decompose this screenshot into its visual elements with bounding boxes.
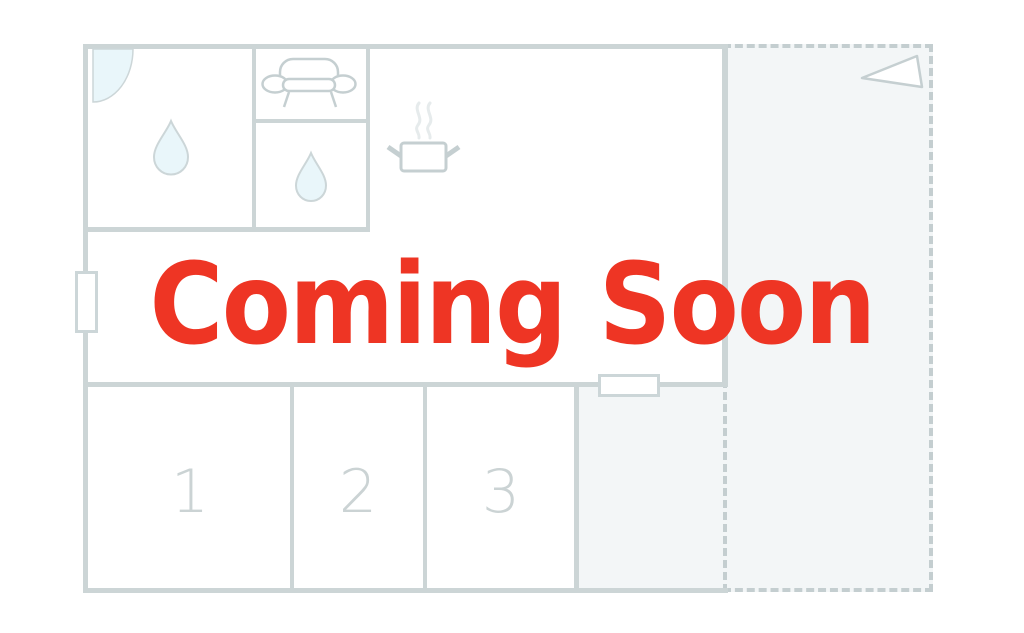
coming-soon-text: Coming Soon [51, 249, 973, 361]
wall-room3-right [574, 387, 579, 588]
room-label-2: 2 [339, 457, 377, 527]
wall-lounge-right [366, 44, 370, 232]
shaded-room [579, 387, 723, 588]
room-label-3: 3 [482, 457, 520, 527]
door-swing-icon [93, 49, 133, 102]
water-drop-icon [154, 121, 188, 175]
wall-bathroom-bottom [88, 227, 370, 232]
steam-icon [417, 103, 420, 138]
floor-plan-placeholder: 1 2 3 Coming Soon [0, 0, 1024, 633]
cooking-pot-icon [388, 103, 459, 171]
steam-icon [428, 103, 431, 138]
wall-lounge-bottom [252, 119, 370, 123]
water-drop-icon [296, 153, 326, 201]
sofa-icon [263, 59, 356, 107]
room-label-1: 1 [171, 457, 209, 527]
wall-room2-room3 [423, 387, 427, 588]
wall-bathroom-right [252, 44, 256, 232]
door-marker [598, 374, 660, 397]
wall-room1-room2 [290, 387, 294, 588]
wall-top [83, 44, 728, 49]
wall-bottom [83, 588, 728, 593]
